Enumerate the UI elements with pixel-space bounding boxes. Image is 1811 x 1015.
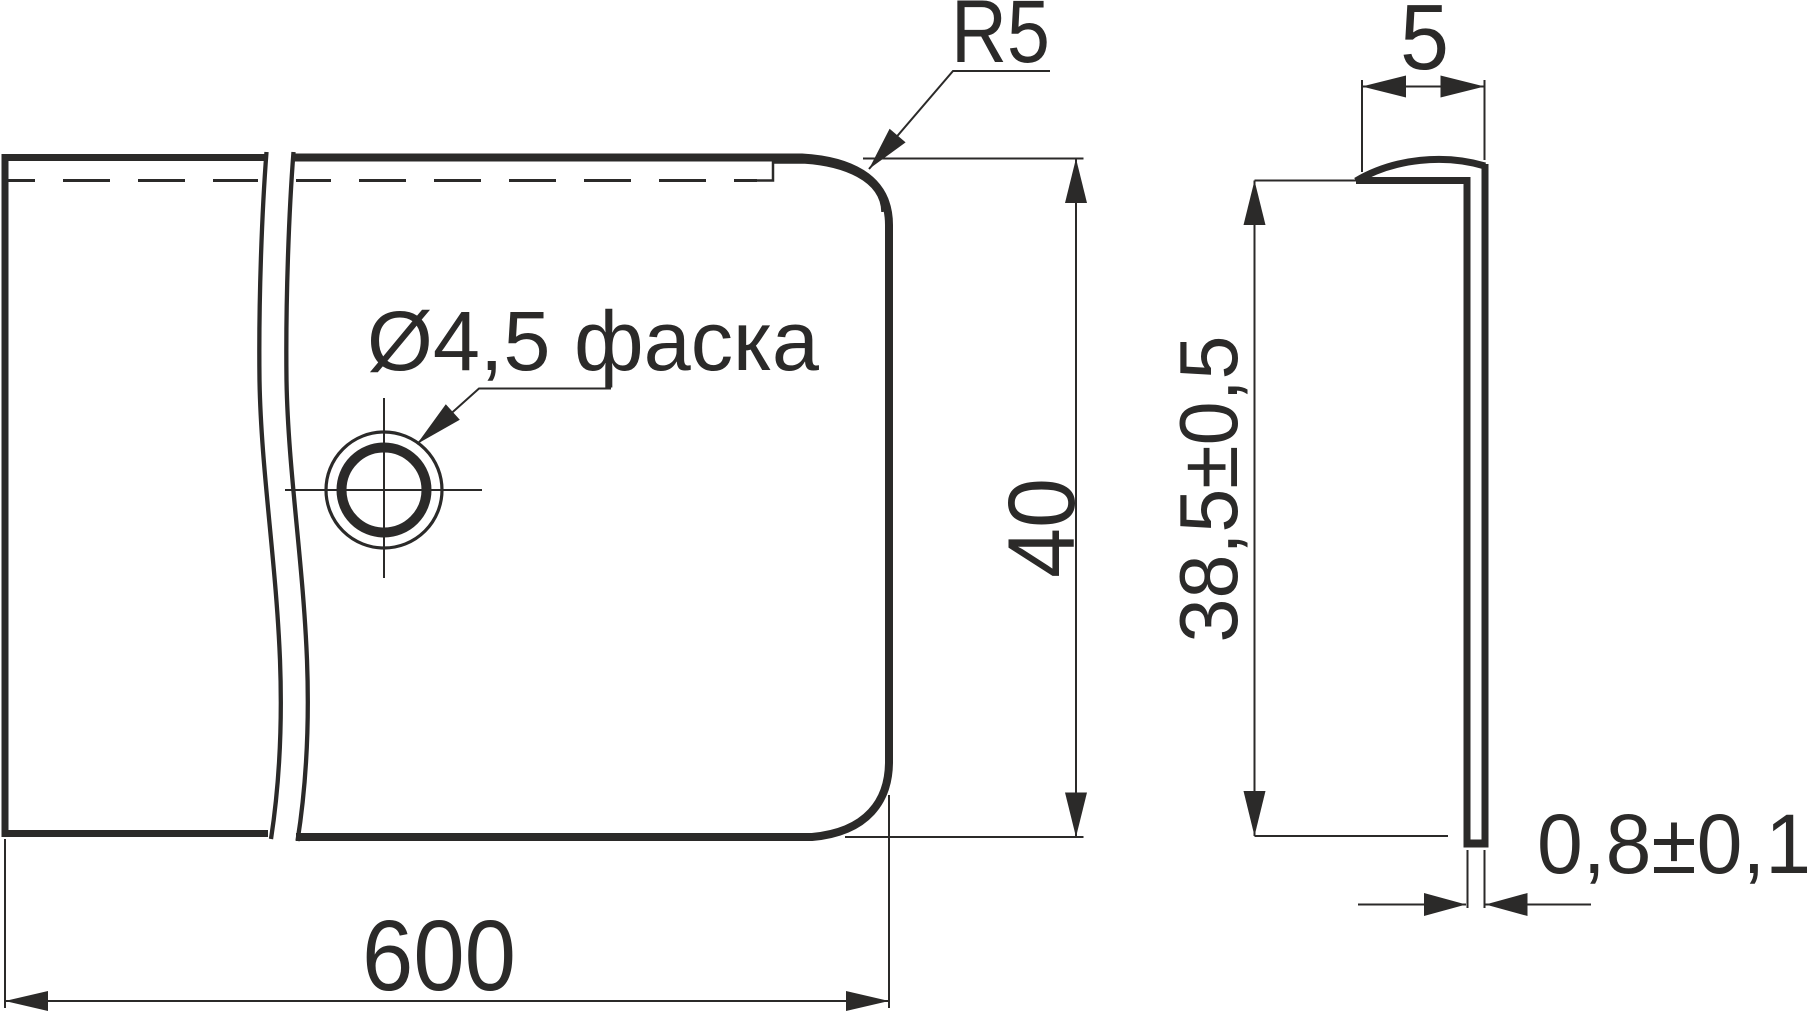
svg-text:600: 600 — [362, 900, 516, 1012]
svg-text:5: 5 — [1400, 0, 1449, 89]
svg-text:38,5±0,5: 38,5±0,5 — [1162, 336, 1255, 643]
svg-text:0,8±0,1: 0,8±0,1 — [1537, 797, 1811, 891]
svg-text:40: 40 — [989, 478, 1095, 578]
svg-text:Ø4,5 фаска: Ø4,5 фаска — [367, 294, 819, 388]
svg-text:R5: R5 — [951, 0, 1050, 81]
